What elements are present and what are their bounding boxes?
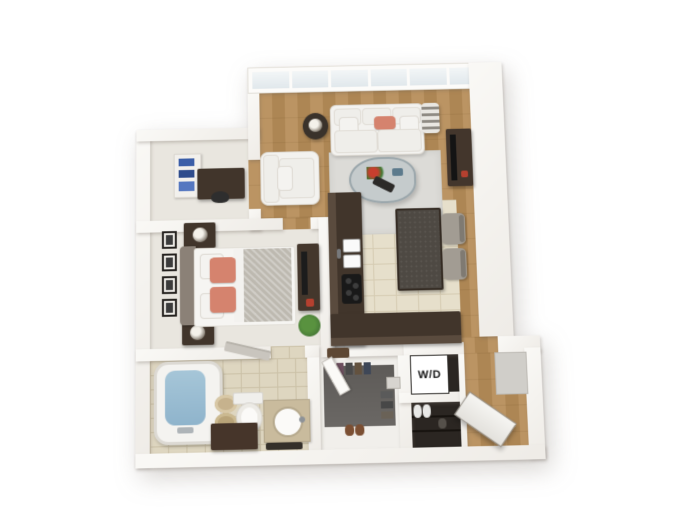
books: [179, 158, 195, 166]
armchair: [260, 151, 320, 206]
wall-art-frame: [162, 299, 177, 317]
island-granite-top: [397, 210, 441, 289]
nightstand-lamp: [190, 325, 205, 340]
wall: [135, 130, 150, 467]
wall: [248, 94, 261, 161]
wall-art-frame: [162, 276, 177, 294]
hanging-clothes-item: [381, 391, 393, 398]
white-shoes: [413, 405, 422, 418]
vanity: [263, 399, 310, 443]
shoes: [345, 424, 354, 435]
kitchen-counter-lower: [330, 311, 461, 346]
bath-water: [165, 370, 206, 426]
books: [179, 170, 195, 178]
island-chair: [441, 213, 466, 245]
sink-faucet: [299, 416, 305, 422]
red-decor: [306, 299, 314, 307]
window-pane: [331, 70, 368, 88]
tv-stand: [446, 128, 474, 186]
sofa: [330, 103, 425, 156]
kitchen-sink-basin: [343, 239, 361, 253]
entry-wall-panel: [494, 352, 528, 395]
kitchen-island: [395, 208, 443, 291]
wall-art-frame: [162, 231, 177, 249]
vanity-sink: [272, 406, 303, 437]
island-chair: [442, 248, 467, 280]
washer-dryer-label: W/D: [418, 368, 442, 381]
shoes: [355, 424, 364, 435]
floorplan-image: W/D: [0, 0, 680, 510]
bed-coral-pillow: [210, 257, 236, 283]
bath-mat: [266, 442, 303, 450]
table-books: [392, 168, 403, 176]
washer-dryer-unit: W/D: [410, 354, 450, 394]
cooktop: [341, 274, 362, 304]
blanket: [239, 248, 292, 322]
sofa-coral-pillow: [374, 116, 396, 130]
apartment-floorplan: W/D: [0, 7, 680, 510]
desk: [197, 168, 245, 200]
bed: [180, 244, 295, 325]
window-pane: [252, 71, 289, 89]
hanging-clothes-item: [355, 362, 362, 374]
dark-shoes: [438, 418, 446, 428]
dresser-tv: [301, 252, 308, 295]
wall: [305, 345, 319, 357]
window-pane: [292, 70, 329, 88]
window-wall: [247, 62, 491, 93]
closet-drawer-unit: [386, 377, 400, 389]
kitchen-sink-basin: [343, 254, 361, 268]
dresser: [297, 243, 320, 310]
window-pane: [370, 69, 407, 87]
floor-lamp: [421, 103, 440, 134]
bed-coral-pillow: [210, 287, 236, 313]
bath-storage-box: [211, 423, 258, 451]
hanging-clothes-item: [381, 401, 393, 408]
nightstand: [184, 222, 216, 248]
bedroom-doorway-floor: [283, 217, 311, 229]
tv-decor: [461, 170, 468, 177]
kitchen-faucet: [337, 249, 341, 259]
bathroom-doorway-floor: [271, 346, 305, 359]
white-shoes: [422, 404, 431, 417]
hanging-clothes-item: [345, 363, 352, 375]
nightstand-lamp: [193, 227, 208, 242]
hanging-clothes-item: [364, 362, 371, 374]
wall-art-frame: [162, 253, 177, 271]
tub-faucet: [177, 427, 193, 434]
hanging-clothes-item: [381, 411, 393, 418]
window-pane: [409, 68, 446, 86]
books: [179, 181, 195, 191]
television: [450, 135, 458, 181]
nook-doorway-floor: [248, 160, 260, 209]
table-lamp: [308, 119, 322, 133]
desk-chair: [211, 191, 229, 203]
